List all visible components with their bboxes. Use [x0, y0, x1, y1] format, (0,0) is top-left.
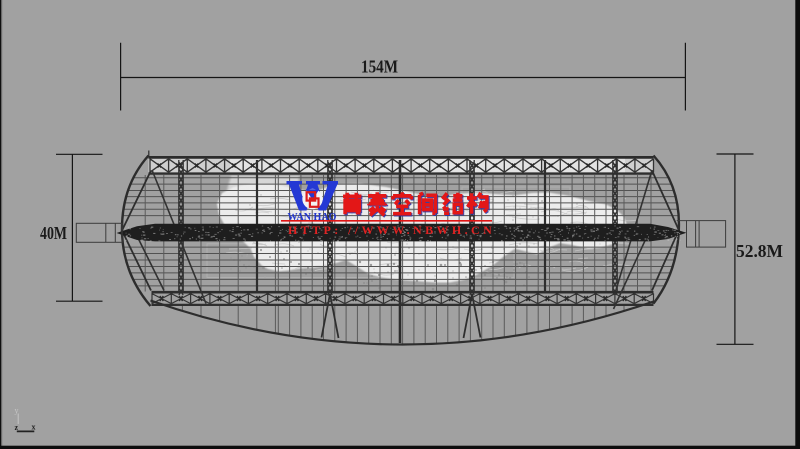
svg-text:154M: 154M — [361, 57, 398, 77]
svg-text:z: z — [15, 423, 19, 432]
svg-text:HTTP: //WWW.NBWH.CN: HTTP: //WWW.NBWH.CN — [288, 223, 495, 237]
svg-text:40M: 40M — [40, 223, 67, 243]
svg-text:52.8M: 52.8M — [736, 241, 783, 261]
svg-text:x: x — [32, 422, 36, 431]
